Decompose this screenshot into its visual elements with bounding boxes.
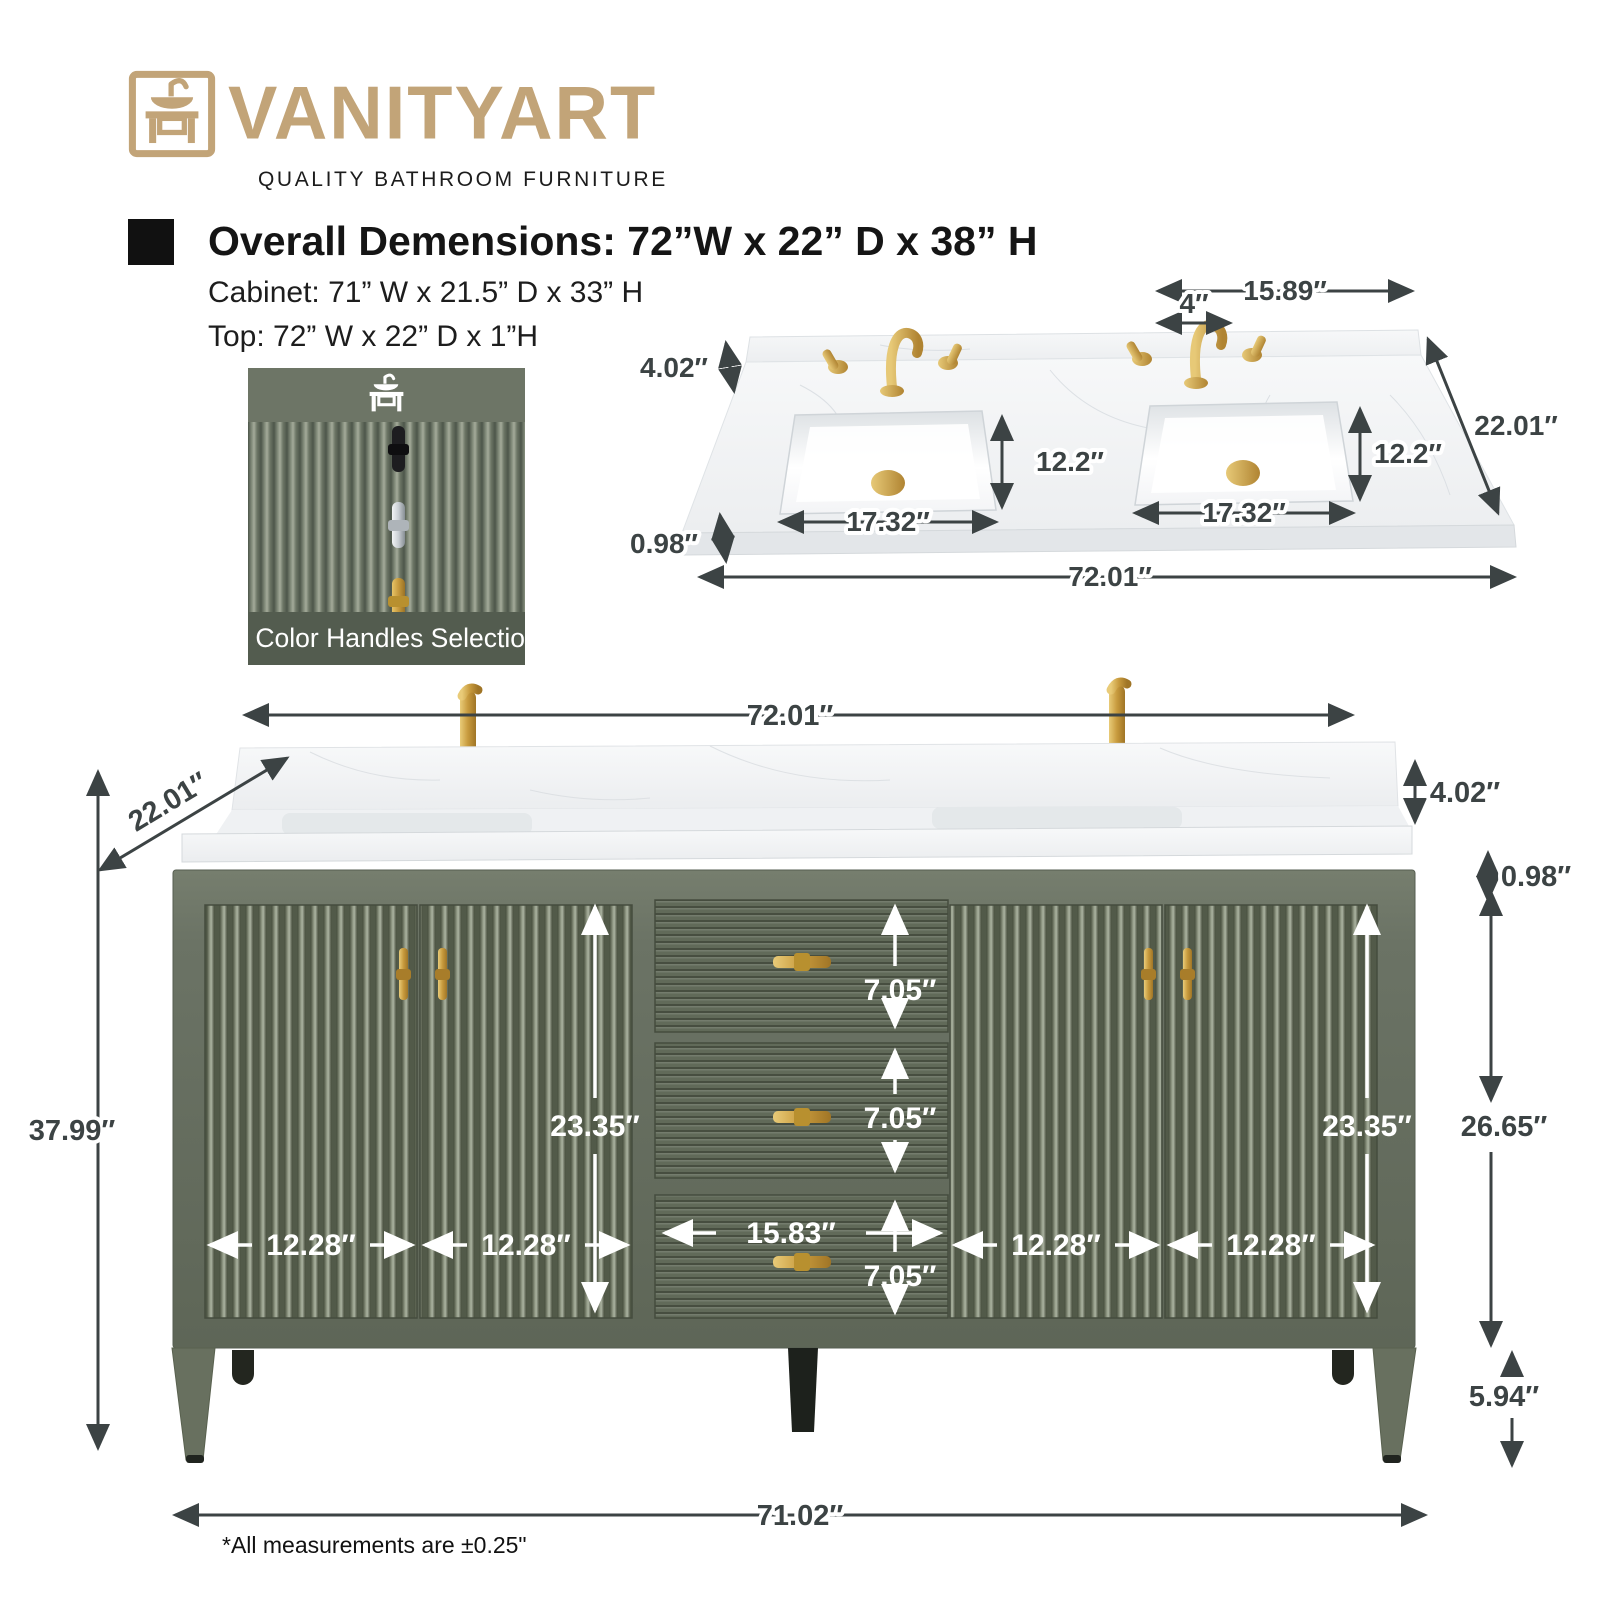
handle-gold xyxy=(388,578,409,612)
dim-door3-1228: 12.28″ xyxy=(1011,1229,1100,1262)
dim-door1-1228: 12.28″ xyxy=(266,1229,355,1262)
dim-front-402: 4.02″ xyxy=(1430,777,1500,809)
handles-card-header xyxy=(248,368,525,422)
leg-cap-right xyxy=(1383,1455,1401,1463)
brand-logo: VANITYART xyxy=(128,70,657,158)
dim-door4-1228: 12.28″ xyxy=(1226,1229,1315,1262)
dim-top-1732-right: 17.32″ xyxy=(1202,497,1285,528)
leg-back-right xyxy=(1332,1350,1354,1385)
dim-front-594: 5.94″ xyxy=(1469,1381,1539,1413)
bullet-square xyxy=(128,219,174,265)
spec-cabinet-dimensions: Cabinet: 71” W x 21.5” D x 33” H xyxy=(208,276,643,310)
leg-back-left xyxy=(232,1350,254,1385)
dim-top-2201: 22.01″ xyxy=(1474,410,1557,441)
dim-top-1589: 15.89″ xyxy=(1243,275,1326,306)
dim-front-098: 0.98″ xyxy=(1501,861,1571,893)
dim-front-2665: 26.65″ xyxy=(1461,1111,1548,1143)
drain-left xyxy=(871,470,905,496)
sink-right-top-view xyxy=(1135,402,1353,505)
leg-cap-left xyxy=(186,1455,204,1463)
dim-top-402: 4.02″ xyxy=(640,352,708,383)
dim-top-4: 4″ xyxy=(1180,288,1209,319)
measurement-tolerance-note: *All measurements are ±0.25" xyxy=(222,1532,527,1559)
logo-vanity-icon xyxy=(128,70,216,158)
handles-selection-card: 3 Color Handles Selection xyxy=(248,368,525,665)
brand-tagline: QUALITY BATHROOM FURNITURE xyxy=(258,168,668,192)
handle-black xyxy=(388,426,409,472)
drain-right xyxy=(1226,460,1260,486)
dim-door-2335-left: 23.35″ xyxy=(550,1110,639,1143)
dim-drawer-1583: 15.83″ xyxy=(746,1217,835,1250)
dim-top-1732-left: 17.32″ xyxy=(846,506,929,537)
spec-overall-row: Overall Demensions: 72”W x 22” D x 38” H xyxy=(128,218,1037,265)
dim-drawer3-705: 7.05″ xyxy=(864,1260,937,1293)
dim-top-122-left: 12.2″ xyxy=(1036,446,1104,477)
vanity-front-view: 72.01″ 22.01″ 37.99″ 4.02″ 0.98″ 26.65″ … xyxy=(10,670,1590,1585)
dim-front-3799: 37.99″ xyxy=(29,1115,116,1147)
leg-front-left xyxy=(172,1348,215,1460)
dim-front-7102: 71.02″ xyxy=(757,1500,844,1532)
vanity-icon-white xyxy=(361,373,413,417)
handles-card-caption: 3 Color Handles Selection xyxy=(248,612,525,665)
handle-color-options xyxy=(248,422,525,612)
dim-top-122-right: 12.2″ xyxy=(1374,438,1442,469)
handle-chrome xyxy=(388,502,409,548)
dim-drawer2-705: 7.05″ xyxy=(864,1102,937,1135)
sink-left-top-view xyxy=(780,411,996,514)
dim-front-7201: 72.01″ xyxy=(747,700,834,732)
dim-top-7201: 72.01″ xyxy=(1068,561,1151,592)
sink-cutout-right-hint xyxy=(932,807,1182,829)
spec-top-dimensions: Top: 72” W x 22” D x 1”H xyxy=(208,320,538,354)
dim-top-098: 0.98″ xyxy=(630,528,698,559)
brand-name: VANITYART xyxy=(228,69,657,157)
dim-door2-1228: 12.28″ xyxy=(481,1229,570,1262)
dim-drawer1-705: 7.05″ xyxy=(864,974,937,1007)
countertop-top-view: 15.89″ 4″ 4.02″ 12.2″ 12.2″ 17.32″ 17.32… xyxy=(630,275,1570,605)
backsplash-front xyxy=(232,742,1398,810)
leg-front-right xyxy=(1373,1348,1416,1460)
leg-center xyxy=(788,1348,818,1432)
dim-door-2335-right: 23.35″ xyxy=(1322,1110,1411,1143)
spec-overall-dimensions: Overall Demensions: 72”W x 22” D x 38” H xyxy=(208,218,1037,265)
product-dimension-sheet: VANITYART QUALITY BATHROOM FURNITURE Ove… xyxy=(0,0,1600,1600)
